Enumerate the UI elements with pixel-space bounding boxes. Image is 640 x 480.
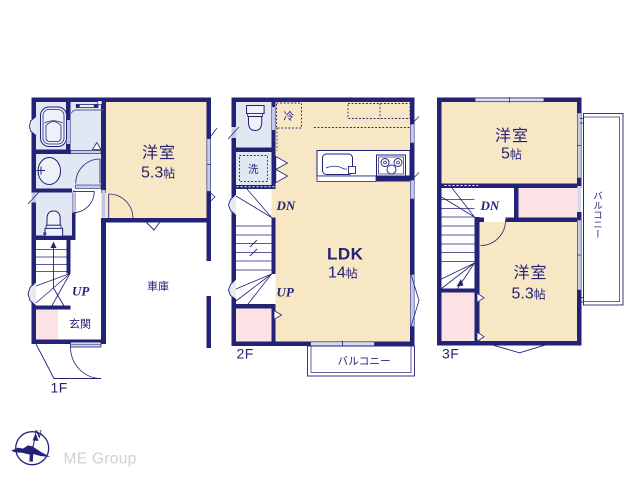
svg-text:洋室: 洋室 <box>514 264 548 282</box>
svg-text:DN: DN <box>480 198 500 213</box>
svg-text:DN: DN <box>276 198 296 213</box>
svg-text:UP: UP <box>72 284 90 299</box>
svg-text:1F: 1F <box>51 380 68 396</box>
svg-text:5.3帖: 5.3帖 <box>512 286 546 303</box>
svg-text:車庫: 車庫 <box>147 279 169 293</box>
svg-text:バルコニー: バルコニー <box>338 356 391 368</box>
svg-text:洗: 洗 <box>248 164 259 176</box>
svg-text:5帖: 5帖 <box>501 146 522 163</box>
svg-text:冷: 冷 <box>284 110 295 123</box>
svg-text:3F: 3F <box>442 346 459 362</box>
svg-text:LDK: LDK <box>327 245 364 264</box>
svg-text:2F: 2F <box>237 346 254 362</box>
svg-text:玄関: 玄関 <box>69 317 91 331</box>
svg-text:洋室: 洋室 <box>495 127 529 145</box>
svg-text:14帖: 14帖 <box>328 265 358 282</box>
svg-text:UP: UP <box>277 285 295 300</box>
svg-text:ME Group: ME Group <box>64 451 137 468</box>
svg-text:5.3帖: 5.3帖 <box>141 165 175 182</box>
svg-text:バルコニー: バルコニー <box>591 191 603 239</box>
svg-text:洋室: 洋室 <box>142 144 176 162</box>
